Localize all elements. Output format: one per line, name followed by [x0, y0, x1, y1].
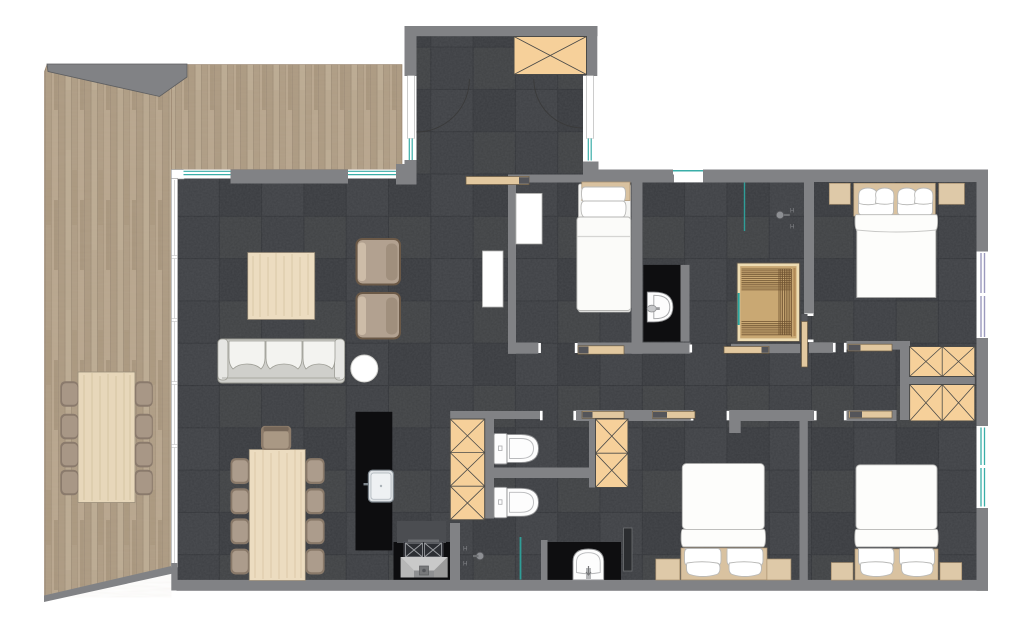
svg-text:H: H	[463, 547, 467, 553]
svg-text:H: H	[463, 562, 467, 568]
svg-text:H: H	[790, 209, 794, 215]
svg-text:H: H	[790, 225, 794, 231]
